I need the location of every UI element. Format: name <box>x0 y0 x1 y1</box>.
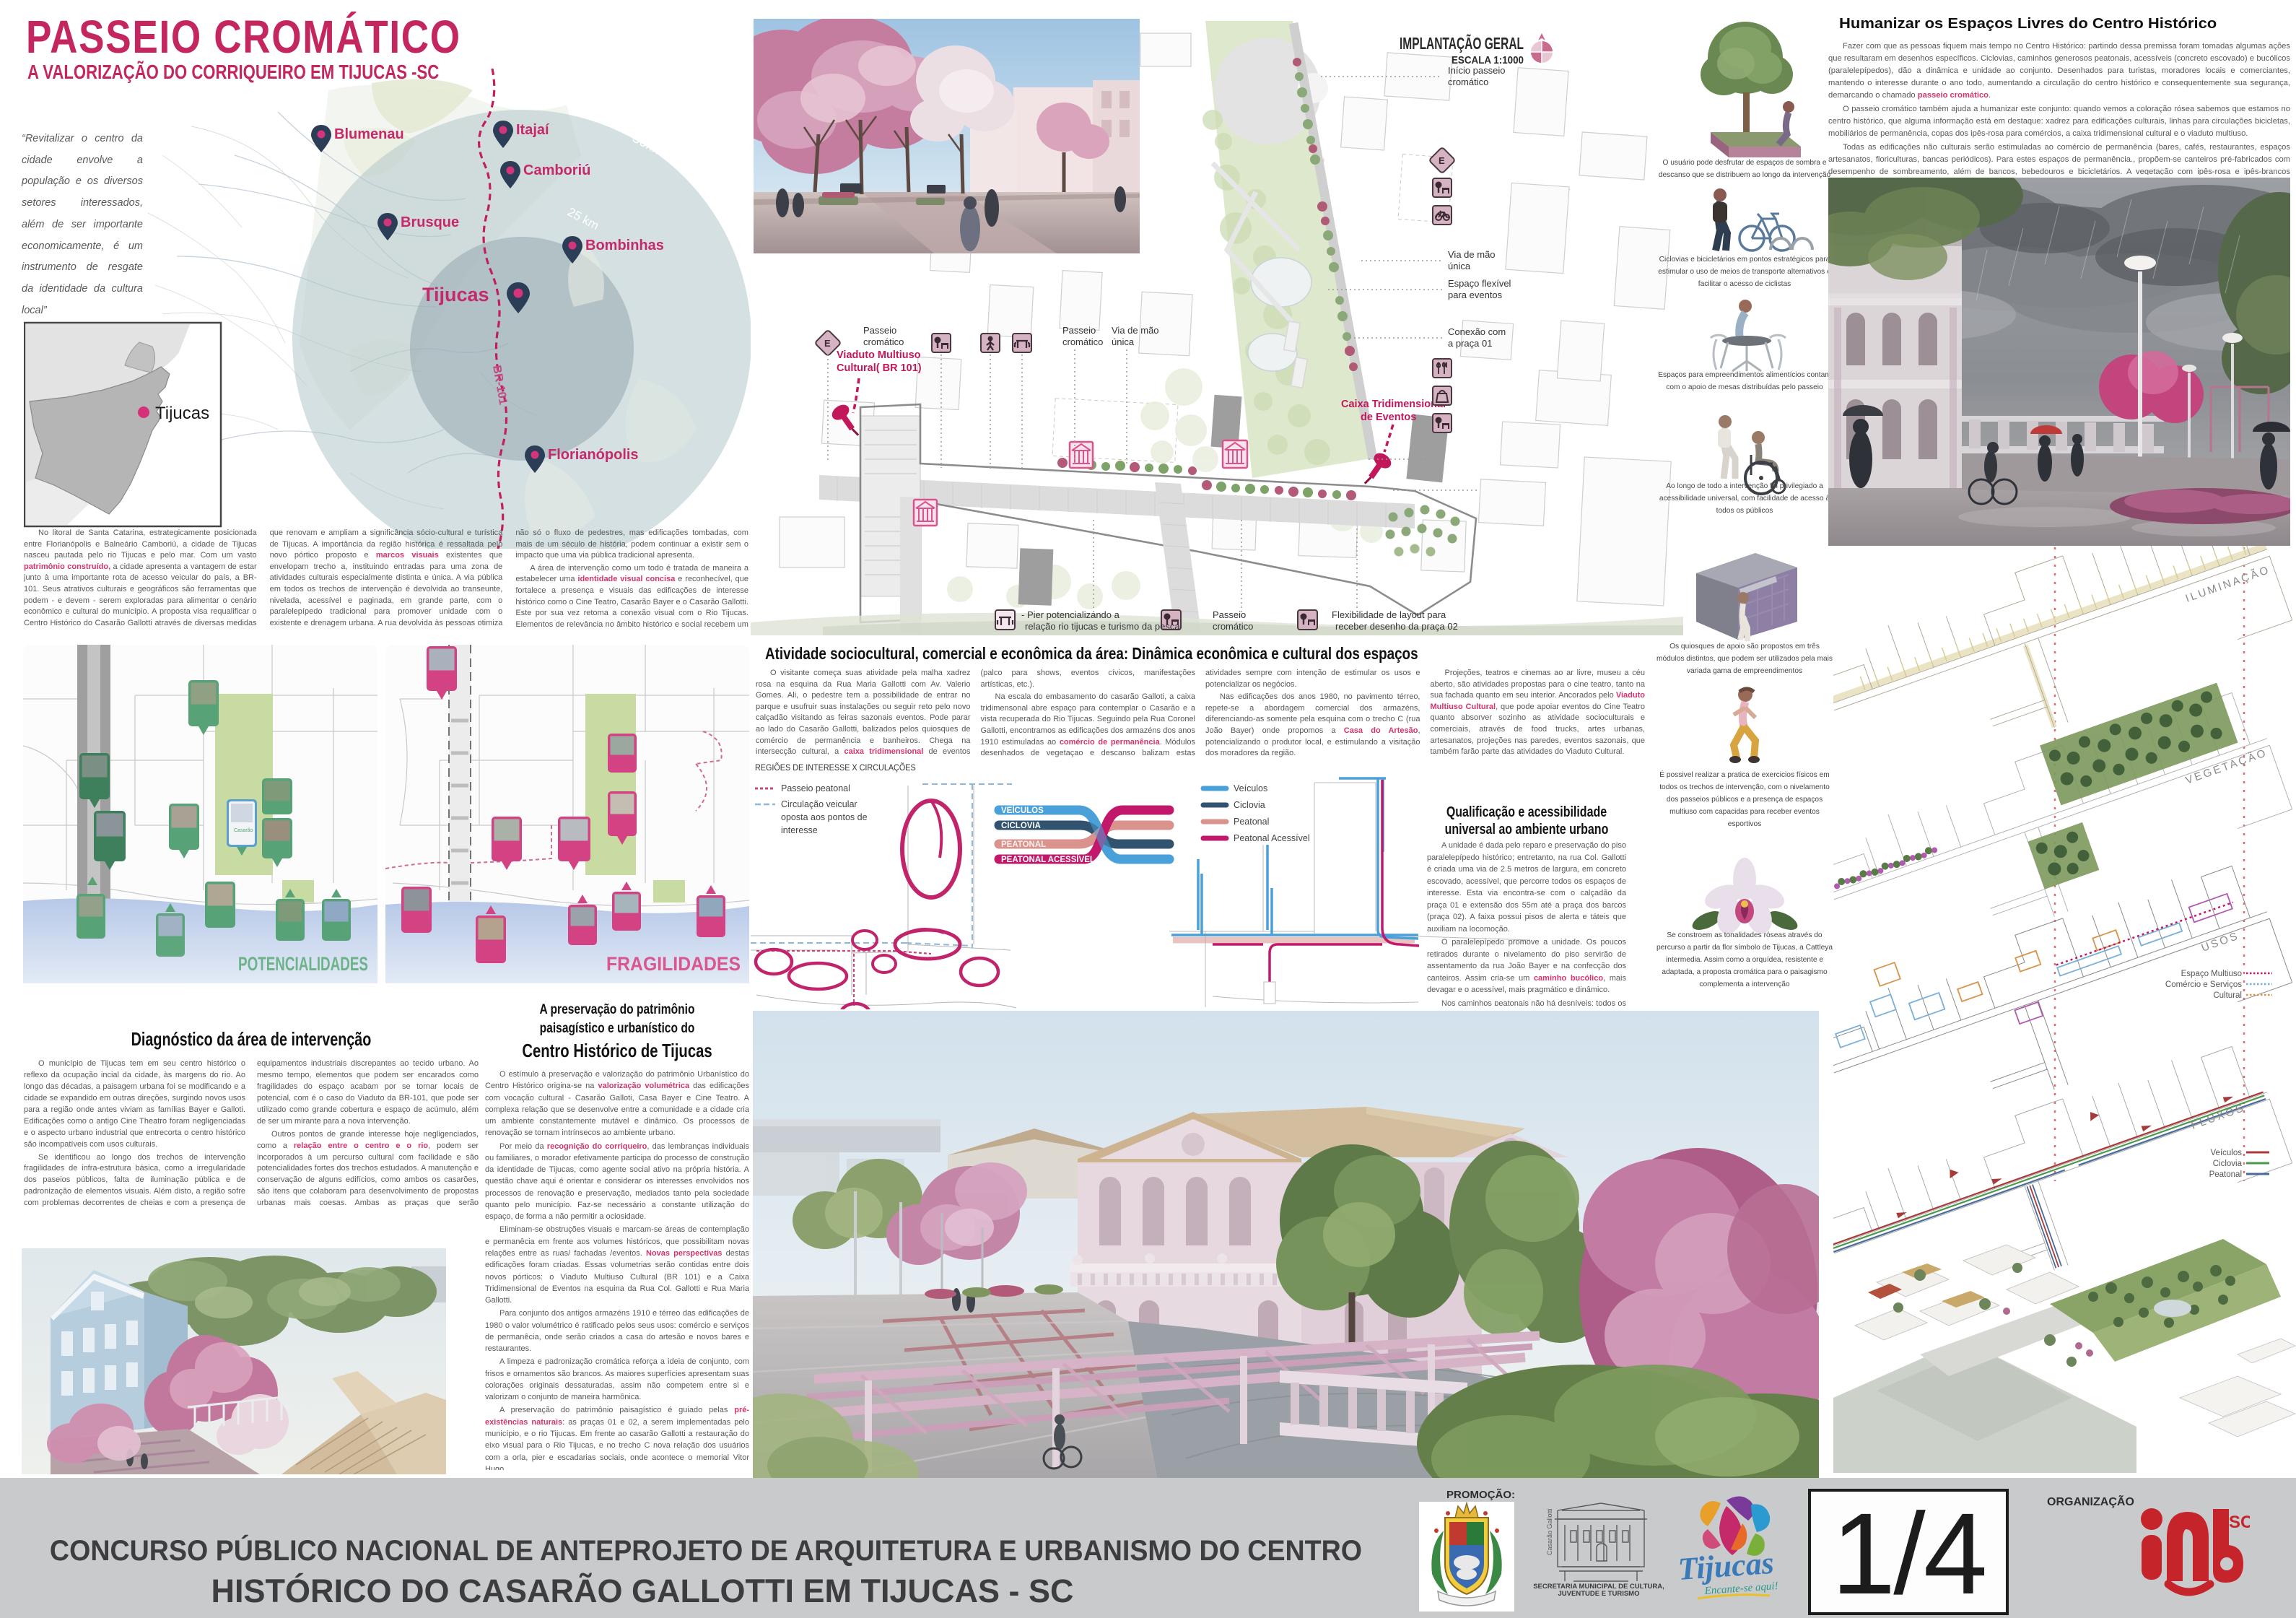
svg-text:complementa a intervenção: complementa a intervenção <box>1699 980 1789 988</box>
svg-text:Cultural: Cultural <box>2213 991 2242 1000</box>
svg-text:de Eventos: de Eventos <box>1361 412 1416 423</box>
svg-text:Brusque: Brusque <box>401 214 459 230</box>
svg-text:SC: SC <box>2229 1513 2250 1532</box>
svg-text:Os quiosques de apoio são prop: Os quiosques de apoio são propostos em t… <box>1669 643 1820 651</box>
svg-text:Ciclovia: Ciclovia <box>2213 1160 2243 1168</box>
svg-text:cromático: cromático <box>1062 336 1103 347</box>
svg-text:multiuso com capacidas para re: multiuso com capacidas para receber even… <box>1669 808 1820 816</box>
svg-text:Espaços para empreendimentos a: Espaços para empreendimentos alimentício… <box>1658 371 1831 379</box>
svg-text:com o apoio de mesas distribuí: com o apoio de mesas distribuídas pelo p… <box>1666 383 1823 391</box>
svg-text:Tijucas: Tijucas <box>155 404 209 423</box>
svg-text:JUVENTUDE E TURISMO: JUVENTUDE E TURISMO <box>1558 1590 1640 1597</box>
svg-text:FRAGILIDADES: FRAGILIDADES <box>606 953 741 975</box>
svg-text:oposta aos pontos de: oposta aos pontos de <box>781 812 868 822</box>
svg-text:Comércio e Serviços: Comércio e Serviços <box>2165 980 2242 989</box>
svg-text:Bombinhas: Bombinhas <box>585 238 664 253</box>
svg-text:Início passeio: Início passeio <box>1448 65 1506 76</box>
svg-text:Circulação veicular: Circulação veicular <box>781 799 857 809</box>
svg-text:Via de mão: Via de mão <box>1112 325 1159 336</box>
svg-text:acessibilidade universal, com: acessibilidade universal, com facilidade… <box>1659 495 1830 503</box>
svg-text:todos os trechos de intervençã: todos os trechos de intervenção, com o n… <box>1659 783 1830 791</box>
svg-text:Casarão Gallotti: Casarão Gallotti <box>1546 1508 1553 1555</box>
svg-text:PEATONAL: PEATONAL <box>1001 840 1046 849</box>
svg-text:Peatonal: Peatonal <box>2209 1170 2242 1179</box>
svg-text:módulos distintos, que podem s: módulos distintos, que podem ser utiliza… <box>1656 655 1833 663</box>
svg-text:PEATONAL ACESSÍVEL: PEATONAL ACESSÍVEL <box>1001 855 1095 864</box>
svg-text:cromático: cromático <box>1213 621 1253 632</box>
svg-text:Passeio: Passeio <box>1213 609 1246 620</box>
svg-text:descanso que se distribuem ao: descanso que se distribuem ao longo da i… <box>1659 171 1831 179</box>
svg-text:a praça 01: a praça 01 <box>1448 338 1492 349</box>
svg-text:Espaço flexível: Espaço flexível <box>1448 278 1511 289</box>
svg-text:Florianópolis: Florianópolis <box>548 447 639 463</box>
svg-text:É possivel realizar a pratica: É possivel realizar a pratica de exercic… <box>1659 770 1830 779</box>
svg-text:Tijucas: Tijucas <box>1677 1545 1775 1587</box>
svg-text:estimular o uso de meios de tr: estimular o uso de meios de transporte a… <box>1658 268 1831 276</box>
svg-text:O usuário pode desfrutar de es: O usuário pode desfrutar de espaços de s… <box>1662 159 1826 167</box>
svg-text:ESCALA 1:1000: ESCALA 1:1000 <box>1452 55 1524 66</box>
svg-text:POTENCIALIDADES: POTENCIALIDADES <box>238 953 368 975</box>
svg-text:cromático: cromático <box>863 336 904 347</box>
svg-text:única: única <box>1448 261 1471 271</box>
svg-text:E: E <box>824 338 831 349</box>
svg-text:facilitar o acesso de ciclista: facilitar o acesso de ciclistas <box>1698 280 1791 288</box>
svg-text:CICLOVIA: CICLOVIA <box>1001 822 1041 830</box>
svg-text:Caixa Tridimensional: Caixa Tridimensional <box>1341 399 1446 410</box>
svg-text:Passeio: Passeio <box>863 325 896 336</box>
svg-text:Via de mão: Via de mão <box>1448 249 1496 260</box>
svg-text:Espaço Multiuso: Espaço Multiuso <box>2181 970 2242 978</box>
svg-text:adaptada, a proposta cromática: adaptada, a proposta cromática para o pa… <box>1662 968 1828 976</box>
svg-text:intermedia. Assim como a orquí: intermedia. Assim como a orquídea, resis… <box>1666 956 1823 964</box>
svg-text:Ao longo de todo a intervenção: Ao longo de todo a intervenção foi privi… <box>1666 482 1823 490</box>
svg-text:cromático: cromático <box>1448 77 1488 87</box>
svg-text:dos passeios públicos e a pres: dos passeios públicos e a presença de es… <box>1667 796 1823 804</box>
svg-text:Tijucas: Tijucas <box>422 284 489 305</box>
svg-text:Flexibilidade de layout para: Flexibilidade de layout para <box>1332 609 1446 620</box>
svg-text:Ciclovias e bicicletários em p: Ciclovias e bicicletários em pontos estr… <box>1659 256 1830 264</box>
svg-text:Veículos: Veículos <box>2211 1149 2243 1157</box>
svg-text:para eventos: para eventos <box>1448 290 1503 300</box>
svg-text:variada gama de empreendimento: variada gama de empreendimentos <box>1687 667 1802 675</box>
svg-text:Viaduto Multiuso: Viaduto Multiuso <box>837 349 921 361</box>
svg-text:Blumenau: Blumenau <box>334 126 404 142</box>
svg-text:relação rio tijucas e turismo: relação rio tijucas e turismo da pesca <box>1025 621 1180 632</box>
svg-text:todos os públicos: todos os públicos <box>1716 507 1773 515</box>
svg-text:Se constroem as tonalidades ró: Se constroem as tonalidades róseas atrav… <box>1667 931 1823 939</box>
svg-text:esportivos: esportivos <box>1728 820 1761 828</box>
svg-text:Camboriú: Camboriú <box>523 162 590 178</box>
svg-text:E: E <box>1439 155 1445 166</box>
svg-text:Casarão: Casarão <box>234 828 253 833</box>
svg-text:Itajaí: Itajaí <box>516 122 550 138</box>
svg-text:percurso a partir da flor símb: percurso a partir da flor símbolo de Tij… <box>1656 944 1833 952</box>
svg-text:receber desenho da praça 02: receber desenho da praça 02 <box>1335 621 1458 632</box>
svg-text:Cultural( BR 101): Cultural( BR 101) <box>837 362 922 374</box>
svg-text:interesse: interesse <box>781 825 818 835</box>
svg-text:Conexão com: Conexão com <box>1448 326 1506 337</box>
svg-text:- Pier potencializando a: - Pier potencializando a <box>1021 609 1120 620</box>
svg-text:Passeio peatonal: Passeio peatonal <box>781 783 850 793</box>
svg-text:VEÍCULOS: VEÍCULOS <box>1001 806 1044 815</box>
svg-text:IMPLANTAÇÃO GERAL: IMPLANTAÇÃO GERAL <box>1400 33 1524 53</box>
svg-text:única: única <box>1112 336 1135 347</box>
svg-text:Passeio: Passeio <box>1062 325 1096 336</box>
